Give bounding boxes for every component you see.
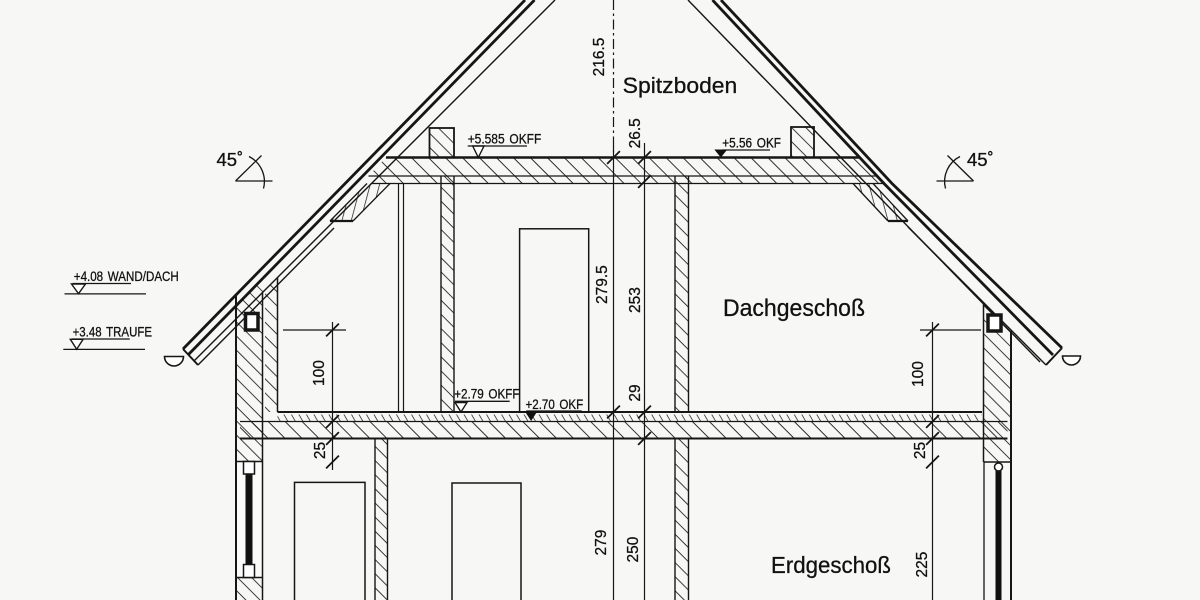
- svg-text:Dachgeschoß: Dachgeschoß: [723, 295, 865, 322]
- svg-text:25: 25: [912, 442, 929, 459]
- svg-text:225: 225: [914, 552, 931, 578]
- svg-text:+4.08 WAND/DACH: +4.08 WAND/DACH: [74, 269, 179, 284]
- svg-text:216.5: 216.5: [591, 38, 608, 77]
- svg-text:+5.585 OKFF: +5.585 OKFF: [468, 132, 542, 147]
- svg-text:100: 100: [311, 360, 328, 386]
- svg-text:279: 279: [593, 530, 610, 556]
- svg-text:250: 250: [625, 536, 642, 562]
- svg-text:Erdgeschoß: Erdgeschoß: [771, 552, 891, 578]
- svg-text:253: 253: [627, 287, 644, 313]
- svg-text:+2.79 OKFF: +2.79 OKFF: [454, 387, 519, 402]
- svg-text:279.5: 279.5: [594, 265, 611, 304]
- svg-text:45˚: 45˚: [217, 149, 244, 170]
- svg-text:+5.56 OKF: +5.56 OKF: [722, 136, 781, 151]
- svg-text:+3.48 TRAUFE: +3.48 TRAUFE: [73, 324, 152, 339]
- svg-text:29: 29: [627, 384, 644, 401]
- svg-text:26.5: 26.5: [627, 118, 644, 148]
- svg-text:25: 25: [312, 442, 329, 459]
- svg-text:Spitzboden: Spitzboden: [623, 73, 738, 98]
- svg-text:+2.70 OKF: +2.70 OKF: [526, 397, 584, 412]
- svg-text:100: 100: [910, 361, 927, 387]
- svg-text:45˚: 45˚: [967, 149, 994, 170]
